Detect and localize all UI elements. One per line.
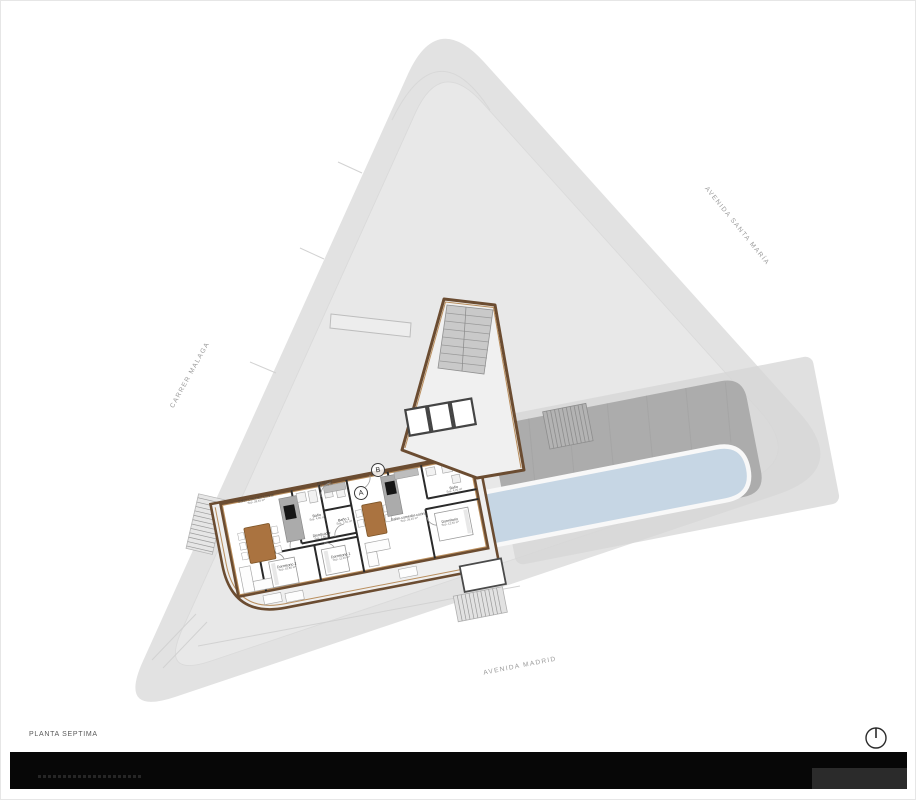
- footer-logo-plate: [812, 768, 907, 789]
- floorplan-page: AVENIDA SANTA MARÍA CARRER MALAGA AVENID…: [0, 0, 916, 800]
- plan-title: PLANTA SEPTIMA: [29, 731, 98, 738]
- footer-title-bar: [10, 752, 907, 789]
- site-plan-canvas: [0, 0, 916, 800]
- footer-fine-print: [38, 775, 143, 778]
- deck-stairs-hatch: [543, 403, 593, 449]
- stairwell: [438, 305, 493, 374]
- north-compass-icon: [864, 726, 888, 750]
- north-indicator-glyph: [864, 726, 888, 750]
